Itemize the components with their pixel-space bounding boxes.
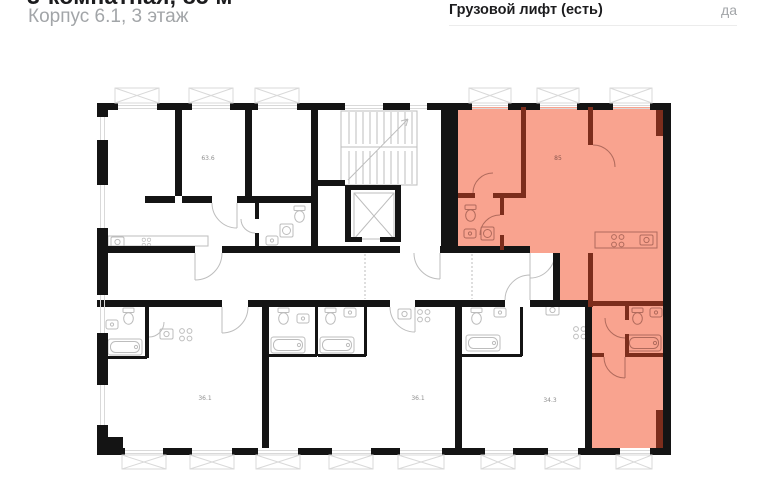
apartment-34-3-region[interactable]: [462, 307, 585, 448]
apartment-36-1-a-region[interactable]: [108, 307, 262, 448]
apartment-63-6-region[interactable]: [108, 110, 311, 246]
floor-plan: 63.6 85 36.1 36.1 34.3: [0, 0, 770, 500]
elevator: [354, 193, 394, 239]
stairs: [341, 111, 417, 185]
apartment-36-1-b-region[interactable]: [269, 307, 455, 448]
corridor-dashed-line: [365, 254, 472, 299]
